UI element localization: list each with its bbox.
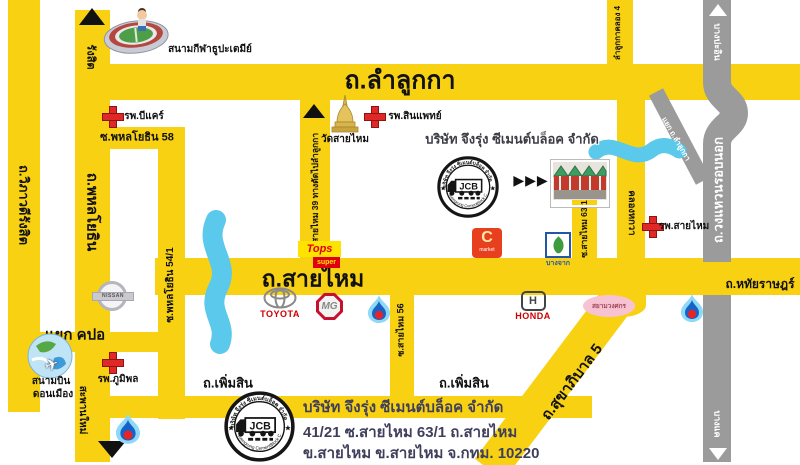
bangchak-wordmark: บางจาก: [543, 258, 573, 269]
company-logo-jcb: บริษัท จึงรุ่ง ซีเมนต์บล็อค จำกัด Juengr…: [437, 156, 499, 218]
gas-station-drop-icon: [681, 294, 703, 322]
label-sai-mai-56: ซ.สายไหม 56: [397, 303, 406, 356]
label-phahonyothin-58: ซ.พหลโยธิน 58: [100, 133, 174, 144]
label-lam-luk-ka: ถ.ลำลูกกา: [344, 69, 455, 94]
label-siam-wongsakorn: สยามวงศกร: [592, 301, 626, 311]
bangchak-logo: บางจาก: [543, 232, 573, 269]
label-hospital-sai-mai: รพ.สายไหม: [659, 222, 710, 232]
c-market-letter: C: [472, 228, 502, 248]
label-hospital-synphaet: รพ.สินแพทย์: [388, 112, 441, 122]
address-line-3: ข.สายไหม ข.สายไหม จ.กทม. 10220: [303, 441, 539, 465]
logo-jcb-text: JCB: [250, 420, 272, 432]
label-sai-mai-39: ซ.สายไหม 39 ทางตัดไปลำลูกกา: [311, 133, 320, 251]
label-stadium: สนามกีฬาธูปะเตมีย์: [168, 45, 252, 55]
label-hospital-bhumibol: รพ.ภูมิพล: [98, 375, 139, 385]
label-lam-luk-ka-khlong-4: ลำลูกกาคลอง 4: [614, 6, 622, 60]
canal-east: [596, 145, 679, 154]
label-airport-line2: ดอนเมือง: [33, 390, 73, 400]
honda-wordmark: HONDA: [512, 311, 554, 321]
tops-logo: Tops super: [298, 241, 341, 268]
label-hospital-bcare: รพ.บีแคร์: [124, 112, 164, 122]
label-bang-pa-in: บางปะอิน: [713, 23, 722, 60]
direction-arrows-icon: ▶▶▶: [513, 173, 548, 187]
honda-logo: H HONDA: [512, 291, 554, 321]
label-phahonyothin: ถ.พหลโยธิน: [85, 173, 100, 251]
label-temple: วัดสายไหม: [321, 135, 369, 145]
temple-icon: [329, 95, 361, 135]
address-line-1: บริษัท จึงรุ่ง ซีเมนต์บล็อค จำกัด: [303, 395, 503, 419]
label-bang-khae: บางแค: [713, 411, 722, 438]
label-rangsit: รังสิต: [85, 44, 96, 69]
company-logo-jcb-large: บริษัท จึงรุ่ง ซีเมนต์บล็อค จำกัด Juengr…: [224, 391, 295, 462]
siam-wongsakorn-badge: สยามวงศกร: [583, 295, 635, 317]
c-market-sub: market: [472, 248, 502, 253]
tops-wordmark: Tops: [298, 241, 341, 257]
gas-station-drop-icon: [368, 295, 390, 323]
hospital-cross-bhumibol-icon: [102, 352, 124, 374]
stadium-image: [100, 5, 172, 63]
toyota-emblem-icon: [263, 287, 297, 309]
label-hathai-rat: ถ.หทัยราษฎร์: [725, 278, 794, 290]
label-khlong-hok-wa: คลองหกวา: [626, 190, 636, 235]
nissan-logo: NISSAN: [94, 281, 132, 313]
north-arrow-sai-mai-39-icon: [303, 104, 325, 118]
label-saphan-mai: สะพานใหม่: [77, 386, 87, 435]
south-arrow-ring-road-icon: [709, 448, 727, 460]
north-arrow-ring-road-icon: [709, 4, 727, 16]
label-perm-sin-west: ถ.เพิ่มสิน: [203, 377, 253, 390]
label-phahonyothin-54-1: ซ.พหลโยธิน 54/1: [166, 247, 176, 322]
label-ring-road: ถ.วงแหวนรอบนอก: [712, 137, 725, 243]
map-canvas: ถ.ลำลูกกา ถ.สายไหม ถ.หทัยราษฎร์ ถ.เพิ่มส…: [0, 0, 800, 465]
hospital-cross-synphaet-icon: [364, 106, 386, 128]
c-market-logo: C market: [472, 228, 502, 258]
label-sai-mai-63-1: ซ.สายไหม 63/1: [580, 200, 589, 257]
factory-photo: [551, 160, 609, 207]
tops-super-wordmark: super: [313, 257, 340, 268]
toyota-wordmark: TOYOTA: [258, 309, 302, 319]
toyota-logo: TOYOTA: [258, 287, 302, 319]
canal-west: [213, 220, 222, 344]
gas-station-drop-icon: [116, 413, 140, 444]
hospital-cross-bcare-icon: [102, 106, 124, 128]
label-perm-sin-east: ถ.เพิ่มสิน: [439, 377, 489, 390]
label-vibhavadi: ถ.วิภาวดีรังสิต: [18, 165, 31, 245]
nissan-wordmark: NISSAN: [92, 292, 134, 301]
bangchak-emblem-icon: [545, 232, 571, 258]
mg-wordmark: MG: [319, 296, 340, 317]
company-name-map: บริษัท จึงรุ่ง ซีเมนต์บล็อค จำกัด: [425, 133, 599, 146]
logo-jcb-text: JCB: [459, 181, 478, 191]
honda-emblem-icon: H: [521, 291, 546, 311]
label-airport-line1: สนามบิน: [32, 377, 70, 387]
